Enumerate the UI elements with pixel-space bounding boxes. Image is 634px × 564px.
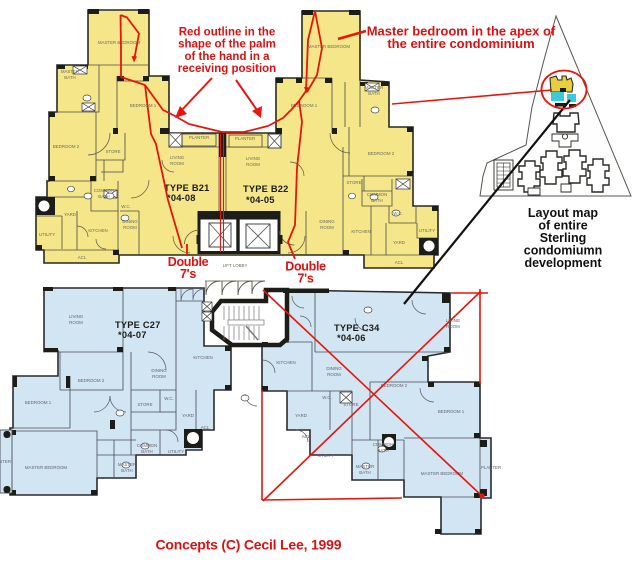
svg-text:BATH: BATH <box>64 75 75 80</box>
svg-text:PLANTER: PLANTER <box>189 135 209 140</box>
svg-text:TYPE B22: TYPE B22 <box>243 184 289 194</box>
svg-text:PLANTER: PLANTER <box>481 465 501 470</box>
svg-text:KITCHEN: KITCHEN <box>351 229 370 234</box>
svg-text:NTER: NTER <box>0 459 11 464</box>
svg-text:Red outline in the: Red outline in the <box>179 27 275 39</box>
svg-text:W.C.: W.C. <box>121 204 131 209</box>
svg-text:BATH: BATH <box>98 194 109 199</box>
svg-text:MASTER: MASTER <box>356 464 374 469</box>
svg-text:ROOM: ROOM <box>246 162 260 167</box>
svg-text:ROOM: ROOM <box>69 320 83 325</box>
svg-text:the entire condominium: the entire condominium <box>387 36 534 51</box>
svg-text:W.C.: W.C. <box>393 211 403 216</box>
svg-text:UTILITY: UTILITY <box>39 232 55 237</box>
svg-text:W.C.: W.C. <box>164 396 174 401</box>
svg-text:COMMON: COMMON <box>373 442 394 447</box>
svg-text:ROOM: ROOM <box>446 324 460 329</box>
svg-text:*04-08: *04-08 <box>167 193 196 203</box>
svg-text:COMMON: COMMON <box>137 443 158 448</box>
svg-text:BATH: BATH <box>121 468 132 473</box>
svg-text:*04-07: *04-07 <box>118 330 147 340</box>
svg-text:BEDROOM 1: BEDROOM 1 <box>25 400 52 405</box>
svg-text:BEDROOM 2: BEDROOM 2 <box>368 151 395 156</box>
svg-text:W.C.: W.C. <box>322 395 332 400</box>
svg-text:7's: 7's <box>180 267 196 281</box>
svg-text:BATH: BATH <box>368 91 379 96</box>
svg-text:TYPE C34: TYPE C34 <box>334 323 380 333</box>
svg-text:COMMON: COMMON <box>367 192 388 197</box>
svg-text:TYPE B21: TYPE B21 <box>164 183 210 193</box>
svg-text:receiving position: receiving position <box>178 63 276 75</box>
svg-text:development: development <box>524 256 602 270</box>
svg-text:TYPE C27: TYPE C27 <box>115 320 161 330</box>
svg-text:BATH: BATH <box>377 448 388 453</box>
svg-text:MASTER BEDROOM: MASTER BEDROOM <box>308 44 351 49</box>
svg-text:DINING: DINING <box>151 368 167 373</box>
svg-text:STORE: STORE <box>105 149 120 154</box>
svg-text:STORE: STORE <box>137 402 152 407</box>
svg-text:ACL: ACL <box>201 425 210 430</box>
svg-text:KITCHEN: KITCHEN <box>193 355 212 360</box>
svg-text:ROOM: ROOM <box>170 161 184 166</box>
svg-text:BATH: BATH <box>359 470 370 475</box>
svg-text:UTILITY: UTILITY <box>419 228 435 233</box>
svg-text:LIVING: LIVING <box>170 155 185 160</box>
svg-text:LIVING: LIVING <box>246 156 261 161</box>
svg-text:MASTER BEDROOM: MASTER BEDROOM <box>25 465 68 470</box>
svg-text:YARD: YARD <box>295 413 307 418</box>
svg-text:BATH: BATH <box>371 198 382 203</box>
svg-text:BEDROOM 1: BEDROOM 1 <box>438 409 465 414</box>
svg-text:*04-05: *04-05 <box>246 195 275 205</box>
svg-text:LIVING: LIVING <box>69 314 84 319</box>
svg-text:KITCHEN: KITCHEN <box>276 360 295 365</box>
svg-text:YARD: YARD <box>393 240 405 245</box>
svg-text:ROOM: ROOM <box>123 225 137 230</box>
svg-text:STORE: STORE <box>346 180 361 185</box>
svg-text:MASTER: MASTER <box>61 69 79 74</box>
svg-text:BEDROOM 2: BEDROOM 2 <box>53 144 80 149</box>
svg-text:*04-06: *04-06 <box>337 333 366 343</box>
svg-text:YARD: YARD <box>182 413 194 418</box>
svg-text:ACL: ACL <box>302 434 311 439</box>
svg-text:DINING: DINING <box>122 219 138 224</box>
svg-text:of the hand in a: of the hand in a <box>185 51 271 63</box>
svg-text:DINING: DINING <box>319 219 335 224</box>
svg-text:KITCHEN: KITCHEN <box>88 228 107 233</box>
svg-text:ROOM: ROOM <box>327 372 341 377</box>
svg-text:7's: 7's <box>298 272 314 286</box>
svg-text:MASTER: MASTER <box>118 462 136 467</box>
svg-text:BEDROOM 1: BEDROOM 1 <box>130 103 157 108</box>
svg-text:COMMON: COMMON <box>94 188 115 193</box>
svg-text:UTILITY: UTILITY <box>168 449 184 454</box>
svg-text:STORE: STORE <box>343 402 358 407</box>
svg-text:ROOM: ROOM <box>320 225 334 230</box>
svg-text:YARD: YARD <box>64 212 76 217</box>
svg-text:BEDROOM 2: BEDROOM 2 <box>78 378 105 383</box>
svg-text:MASTER: MASTER <box>365 85 383 90</box>
svg-text:DINING: DINING <box>326 366 342 371</box>
svg-text:BATH: BATH <box>141 449 152 454</box>
svg-text:MASTER BEDROOM: MASTER BEDROOM <box>98 40 141 45</box>
svg-text:ROOM: ROOM <box>152 374 166 379</box>
svg-text:ACL: ACL <box>78 255 87 260</box>
svg-text:ACL: ACL <box>395 260 404 265</box>
svg-text:LIFT LOBBY: LIFT LOBBY <box>223 263 248 268</box>
svg-text:shape of the palm: shape of the palm <box>178 39 276 51</box>
svg-text:PLANTER: PLANTER <box>235 136 255 141</box>
svg-text:UTILITY: UTILITY <box>318 453 334 458</box>
svg-text:Concepts (C) Cecil Lee, 1999: Concepts (C) Cecil Lee, 1999 <box>156 537 342 553</box>
